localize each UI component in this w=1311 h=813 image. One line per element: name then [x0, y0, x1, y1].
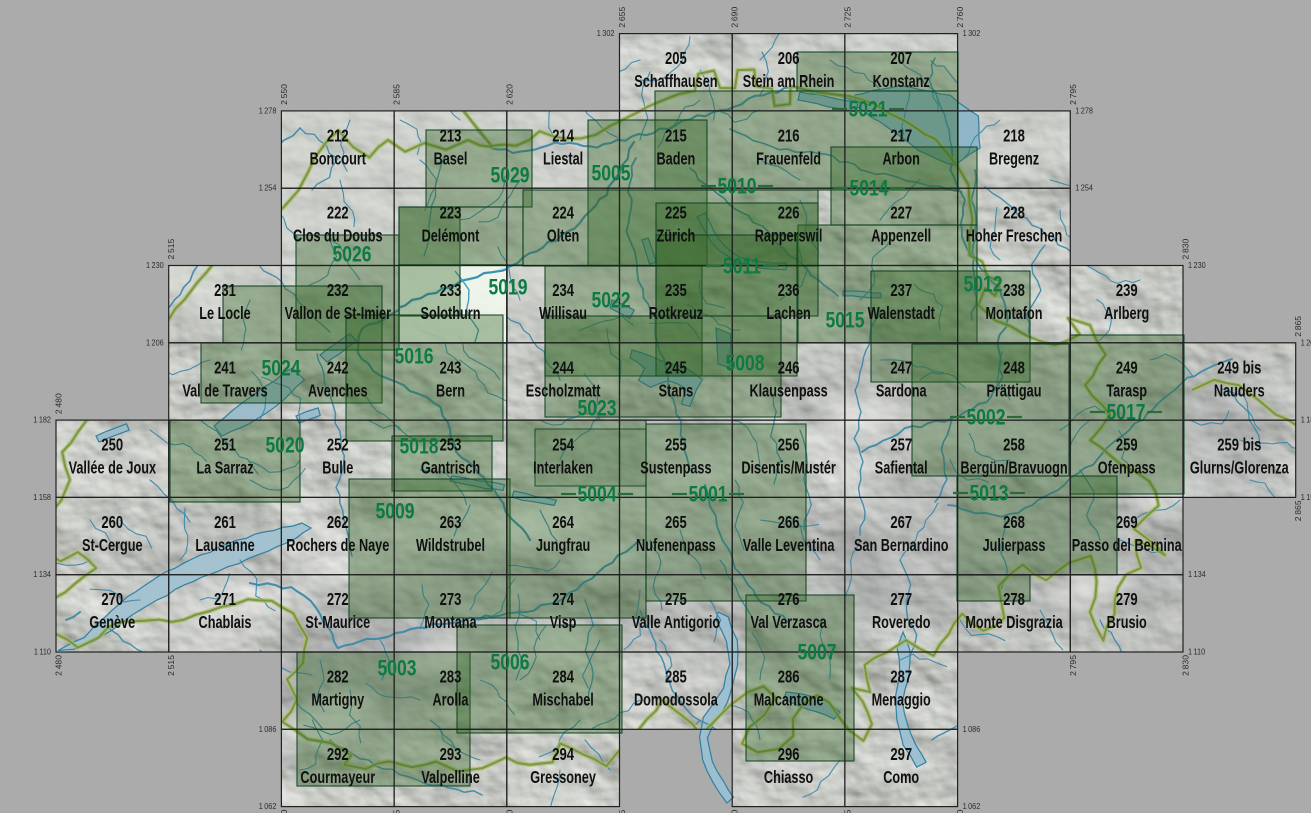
svg-text:2 515: 2 515 — [166, 238, 176, 259]
svg-text:239: 239 — [1116, 281, 1138, 300]
svg-text:235: 235 — [665, 281, 687, 300]
svg-text:5029: 5029 — [490, 164, 529, 189]
svg-text:236: 236 — [778, 281, 800, 300]
svg-text:1 254: 1 254 — [259, 183, 277, 193]
svg-text:5014: 5014 — [849, 177, 889, 202]
svg-text:Arbon: Arbon — [883, 150, 920, 169]
svg-text:5026: 5026 — [332, 243, 371, 268]
svg-text:233: 233 — [440, 281, 462, 300]
svg-text:285: 285 — [665, 668, 687, 687]
svg-text:259: 259 — [1116, 436, 1138, 455]
svg-text:Chablais: Chablais — [199, 613, 252, 632]
svg-text:1 134: 1 134 — [1188, 570, 1206, 580]
svg-text:Walenstadt: Walenstadt — [868, 304, 935, 323]
svg-text:Bregenz: Bregenz — [989, 150, 1039, 169]
svg-text:5023: 5023 — [577, 397, 616, 422]
svg-text:2 655: 2 655 — [617, 809, 627, 813]
svg-text:2 830: 2 830 — [1181, 238, 1191, 259]
svg-text:284: 284 — [552, 668, 574, 687]
svg-text:Schaffhausen: Schaffhausen — [634, 72, 717, 91]
svg-text:293: 293 — [440, 745, 462, 764]
svg-text:1 278: 1 278 — [259, 106, 277, 116]
svg-text:Vallée de Joux: Vallée de Joux — [69, 459, 157, 478]
svg-text:Val de Travers: Val de Travers — [182, 381, 267, 400]
svg-text:Mischabel: Mischabel — [532, 691, 593, 710]
svg-text:5024: 5024 — [261, 357, 301, 382]
svg-text:1 230: 1 230 — [1188, 260, 1206, 270]
svg-text:278: 278 — [1003, 590, 1025, 609]
svg-text:5011: 5011 — [723, 255, 761, 280]
svg-text:271: 271 — [214, 590, 236, 609]
svg-text:Vallon de St-Imier: Vallon de St-Imier — [285, 304, 392, 323]
svg-text:257: 257 — [890, 436, 912, 455]
svg-text:2 725: 2 725 — [842, 809, 852, 813]
svg-text:2 760: 2 760 — [955, 7, 965, 28]
svg-text:261: 261 — [214, 513, 236, 532]
svg-text:Bern: Bern — [436, 381, 465, 400]
svg-text:2 480: 2 480 — [54, 393, 64, 414]
svg-text:Val Verzasca: Val Verzasca — [750, 613, 827, 632]
svg-text:218: 218 — [1003, 127, 1025, 146]
svg-text:273: 273 — [440, 590, 462, 609]
svg-text:Arolla: Arolla — [433, 691, 469, 710]
svg-text:2 690: 2 690 — [730, 7, 740, 28]
svg-text:249 bis: 249 bis — [1217, 359, 1261, 378]
svg-text:248: 248 — [1003, 359, 1025, 378]
svg-text:1 134: 1 134 — [33, 570, 51, 580]
svg-text:Montana: Montana — [424, 613, 477, 632]
svg-text:270: 270 — [101, 590, 123, 609]
svg-text:244: 244 — [552, 359, 574, 378]
svg-text:5016: 5016 — [394, 345, 433, 370]
svg-text:1 254: 1 254 — [1075, 183, 1093, 193]
svg-text:247: 247 — [890, 359, 912, 378]
svg-text:5019: 5019 — [488, 276, 527, 301]
svg-text:231: 231 — [214, 281, 236, 300]
svg-text:Delémont: Delémont — [422, 227, 480, 246]
svg-text:265: 265 — [665, 513, 687, 532]
svg-text:Rochers de Naye: Rochers de Naye — [286, 536, 389, 555]
svg-text:5006: 5006 — [490, 651, 529, 676]
svg-text:241: 241 — [214, 359, 236, 378]
svg-text:Prättigau: Prättigau — [986, 381, 1041, 400]
svg-text:254: 254 — [552, 436, 574, 455]
svg-text:228: 228 — [1003, 204, 1025, 223]
svg-text:2 620: 2 620 — [504, 84, 514, 105]
svg-text:2 585: 2 585 — [392, 84, 402, 105]
svg-text:286: 286 — [778, 668, 800, 687]
svg-text:1 086: 1 086 — [259, 724, 277, 734]
svg-text:5020: 5020 — [265, 434, 304, 459]
svg-text:5022: 5022 — [591, 289, 630, 314]
svg-text:5015: 5015 — [825, 309, 864, 334]
svg-text:Willisau: Willisau — [539, 304, 587, 323]
svg-text:255: 255 — [665, 436, 687, 455]
svg-text:Stans: Stans — [659, 381, 694, 400]
svg-text:243: 243 — [440, 359, 462, 378]
svg-text:Boncourt: Boncourt — [310, 150, 366, 169]
svg-text:Basel: Basel — [434, 150, 468, 169]
svg-text:Lausanne: Lausanne — [195, 536, 254, 555]
svg-text:282: 282 — [327, 668, 349, 687]
svg-text:Bergün/Bravuogn: Bergün/Bravuogn — [960, 459, 1067, 478]
svg-text:262: 262 — [327, 513, 349, 532]
svg-text:Nufenenpass: Nufenenpass — [636, 536, 716, 555]
svg-text:215: 215 — [665, 127, 687, 146]
svg-text:Sustenpass: Sustenpass — [640, 459, 711, 478]
svg-text:Visp: Visp — [550, 613, 577, 632]
svg-text:216: 216 — [778, 127, 800, 146]
svg-text:Zürich: Zürich — [657, 227, 696, 246]
svg-text:242: 242 — [327, 359, 349, 378]
svg-text:1 062: 1 062 — [963, 802, 981, 812]
svg-text:259 bis: 259 bis — [1217, 436, 1261, 455]
svg-text:Courmayeur: Courmayeur — [300, 768, 375, 787]
svg-text:Menaggio: Menaggio — [872, 691, 931, 710]
svg-text:2 690: 2 690 — [730, 809, 740, 813]
svg-text:St-Maurice: St-Maurice — [305, 613, 370, 632]
svg-text:268: 268 — [1003, 513, 1025, 532]
svg-text:1 206: 1 206 — [146, 338, 164, 348]
svg-text:276: 276 — [778, 590, 800, 609]
svg-text:2 515: 2 515 — [166, 655, 176, 676]
svg-text:2 620: 2 620 — [504, 809, 514, 813]
svg-text:1 110: 1 110 — [1188, 647, 1206, 657]
svg-text:Appenzell: Appenzell — [871, 227, 931, 246]
svg-text:256: 256 — [778, 436, 800, 455]
svg-text:2 550: 2 550 — [279, 84, 289, 105]
svg-text:206: 206 — [778, 49, 800, 68]
svg-text:225: 225 — [665, 204, 687, 223]
svg-text:279: 279 — [1116, 590, 1138, 609]
svg-text:San Bernardino: San Bernardino — [854, 536, 948, 555]
svg-text:Ofenpass: Ofenpass — [1098, 459, 1156, 478]
svg-text:5001: 5001 — [688, 483, 727, 508]
svg-text:5005: 5005 — [591, 162, 630, 187]
svg-text:1 278: 1 278 — [1075, 106, 1093, 116]
svg-text:5010: 5010 — [717, 175, 756, 200]
svg-text:251: 251 — [214, 436, 236, 455]
svg-text:297: 297 — [890, 745, 912, 764]
svg-text:Malcantone: Malcantone — [754, 691, 824, 710]
svg-text:Stein am Rhein: Stein am Rhein — [743, 72, 835, 91]
svg-text:Glurns/Glorenza: Glurns/Glorenza — [1190, 459, 1289, 478]
svg-text:232: 232 — [327, 281, 349, 300]
svg-text:Baden: Baden — [657, 150, 696, 169]
svg-text:1 110: 1 110 — [34, 647, 52, 657]
svg-text:2 865: 2 865 — [1293, 316, 1303, 337]
svg-text:264: 264 — [552, 513, 574, 532]
svg-text:Safiental: Safiental — [875, 459, 928, 478]
svg-text:238: 238 — [1003, 281, 1025, 300]
svg-text:Brusio: Brusio — [1107, 613, 1147, 632]
svg-text:Disentis/Mustér: Disentis/Mustér — [741, 459, 836, 478]
svg-text:245: 245 — [665, 359, 687, 378]
svg-text:Valpelline: Valpelline — [421, 768, 480, 787]
svg-text:2 480: 2 480 — [54, 655, 64, 676]
svg-text:Chiasso: Chiasso — [764, 768, 813, 787]
svg-text:5021: 5021 — [848, 98, 887, 123]
svg-text:5012: 5012 — [963, 273, 1002, 298]
svg-text:1 182: 1 182 — [1301, 415, 1311, 425]
svg-text:1 182: 1 182 — [33, 415, 51, 425]
svg-text:Bulle: Bulle — [322, 459, 353, 478]
svg-text:Wildstrubel: Wildstrubel — [416, 536, 485, 555]
svg-text:Klausenpass: Klausenpass — [749, 381, 827, 400]
svg-text:Le Locle: Le Locle — [199, 304, 250, 323]
svg-text:269: 269 — [1116, 513, 1138, 532]
svg-text:Passo del Bernina: Passo del Bernina — [1072, 536, 1182, 555]
svg-text:1 302: 1 302 — [963, 29, 981, 39]
svg-text:227: 227 — [890, 204, 912, 223]
svg-text:Jungfrau: Jungfrau — [536, 536, 590, 555]
svg-text:2 550: 2 550 — [279, 809, 289, 813]
svg-text:Montafon: Montafon — [985, 304, 1042, 323]
svg-text:1 302: 1 302 — [597, 29, 615, 39]
svg-text:294: 294 — [552, 745, 574, 764]
svg-text:234: 234 — [552, 281, 574, 300]
svg-text:287: 287 — [890, 668, 912, 687]
svg-text:5017: 5017 — [1106, 401, 1145, 426]
svg-text:214: 214 — [552, 127, 574, 146]
svg-text:222: 222 — [327, 204, 349, 223]
svg-text:2 795: 2 795 — [1068, 84, 1078, 105]
svg-text:2 865: 2 865 — [1293, 500, 1303, 521]
svg-text:Como: Como — [883, 768, 919, 787]
svg-text:Martigny: Martigny — [311, 691, 364, 710]
svg-text:Hoher Freschen: Hoher Freschen — [966, 227, 1063, 246]
svg-text:Gressoney: Gressoney — [530, 768, 596, 787]
svg-text:275: 275 — [665, 590, 687, 609]
svg-text:Interlaken: Interlaken — [533, 459, 593, 478]
svg-text:Frauenfeld: Frauenfeld — [756, 150, 821, 169]
svg-text:250: 250 — [101, 436, 123, 455]
svg-text:Rotkreuz: Rotkreuz — [649, 304, 704, 323]
svg-text:Gantrisch: Gantrisch — [421, 459, 480, 478]
svg-text:Roveredo: Roveredo — [872, 613, 931, 632]
svg-text:Monte Disgrazia: Monte Disgrazia — [965, 613, 1063, 632]
svg-text:252: 252 — [327, 436, 349, 455]
svg-text:Liestal: Liestal — [543, 150, 583, 169]
svg-text:Arlberg: Arlberg — [1104, 304, 1149, 323]
svg-text:263: 263 — [440, 513, 462, 532]
svg-text:296: 296 — [778, 745, 800, 764]
svg-text:Nauders: Nauders — [1214, 381, 1265, 400]
svg-text:212: 212 — [327, 127, 349, 146]
svg-text:5007: 5007 — [797, 641, 836, 666]
svg-text:Julierpass: Julierpass — [983, 536, 1046, 555]
svg-text:274: 274 — [552, 590, 574, 609]
svg-text:237: 237 — [890, 281, 912, 300]
svg-text:2 585: 2 585 — [392, 809, 402, 813]
svg-text:1 230: 1 230 — [146, 260, 164, 270]
svg-text:277: 277 — [890, 590, 912, 609]
svg-text:283: 283 — [440, 668, 462, 687]
svg-text:La Sarraz: La Sarraz — [196, 459, 253, 478]
svg-text:272: 272 — [327, 590, 349, 609]
svg-text:213: 213 — [440, 127, 462, 146]
svg-text:2 795: 2 795 — [1068, 655, 1078, 676]
svg-text:224: 224 — [552, 204, 574, 223]
svg-text:5013: 5013 — [969, 482, 1008, 507]
svg-text:Rapperswil: Rapperswil — [755, 227, 823, 246]
svg-text:217: 217 — [890, 127, 912, 146]
svg-text:2 830: 2 830 — [1181, 655, 1191, 676]
svg-text:Olten: Olten — [547, 227, 579, 246]
svg-text:5004: 5004 — [577, 483, 617, 508]
svg-text:1 086: 1 086 — [963, 724, 981, 734]
svg-text:5002: 5002 — [966, 406, 1005, 431]
svg-text:223: 223 — [440, 204, 462, 223]
svg-text:5003: 5003 — [377, 657, 416, 682]
svg-text:205: 205 — [665, 49, 687, 68]
svg-text:292: 292 — [327, 745, 349, 764]
svg-text:2 760: 2 760 — [955, 809, 965, 813]
svg-text:1 158: 1 158 — [33, 492, 51, 502]
svg-text:207: 207 — [890, 49, 912, 68]
svg-text:226: 226 — [778, 204, 800, 223]
svg-text:Genève: Genève — [89, 613, 135, 632]
svg-text:Valle Leventina: Valle Leventina — [743, 536, 835, 555]
svg-text:258: 258 — [1003, 436, 1025, 455]
svg-text:260: 260 — [101, 513, 123, 532]
svg-text:Sardona: Sardona — [876, 381, 927, 400]
svg-text:2 725: 2 725 — [842, 7, 852, 28]
svg-text:267: 267 — [890, 513, 912, 532]
svg-text:266: 266 — [778, 513, 800, 532]
svg-text:2 655: 2 655 — [617, 7, 627, 28]
svg-text:Valle Antigorio: Valle Antigorio — [632, 613, 720, 632]
svg-text:249: 249 — [1116, 359, 1138, 378]
svg-text:Domodossola: Domodossola — [634, 691, 718, 710]
svg-text:5018: 5018 — [399, 435, 438, 460]
svg-text:Solothurn: Solothurn — [421, 304, 481, 323]
svg-text:1 062: 1 062 — [259, 802, 277, 812]
svg-text:Avenches: Avenches — [308, 381, 367, 400]
svg-text:5008: 5008 — [725, 352, 764, 377]
svg-text:St-Cergue: St-Cergue — [82, 536, 143, 555]
svg-text:253: 253 — [440, 436, 462, 455]
svg-text:1 206: 1 206 — [1301, 338, 1311, 348]
svg-text:246: 246 — [778, 359, 800, 378]
svg-text:Tarasp: Tarasp — [1106, 381, 1147, 400]
svg-text:Lachen: Lachen — [766, 304, 810, 323]
svg-text:5009: 5009 — [375, 500, 414, 525]
svg-text:Konstanz: Konstanz — [873, 72, 930, 91]
